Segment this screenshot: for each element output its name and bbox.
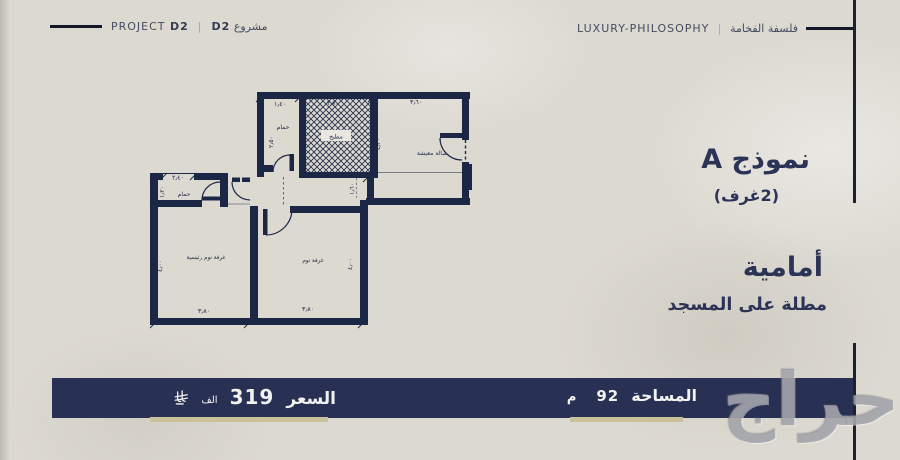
haraj-watermark: حراج — [722, 360, 900, 441]
dim-bath2-width: ٢٫٤٠ — [172, 175, 184, 182]
facing-title: أمامية — [743, 252, 823, 283]
dim-corridor-height: ١٫٦٠ — [349, 183, 356, 195]
dim-master-height: ٤٫٠٠ — [157, 260, 164, 272]
area-label: المساحة — [631, 386, 697, 405]
price-underline — [150, 417, 328, 422]
left-edge-shadow — [0, 0, 10, 460]
area-unit: م — [567, 390, 577, 405]
area-underline — [570, 417, 683, 422]
model-name: نموذج A — [701, 144, 810, 175]
dim-bath2-height: ١٫٢٠ — [159, 186, 166, 198]
dim-living-width: ٣٫٦٠ — [410, 99, 422, 106]
price-unit: الف — [201, 395, 217, 406]
luxury-label-en: LUXURY-PHILOSOPHY — [577, 22, 709, 35]
header-brand-right: LUXURY-PHILOSOPHY | فلسفة الفخامة — [577, 22, 854, 35]
room-label-master-bedroom: غرفة نوم رئيسية — [187, 255, 226, 261]
room-label-kitchen: مطبخ — [329, 134, 343, 141]
dim-kitchen-width: ٢٫٧٠ — [327, 100, 339, 107]
room-label-living: صالة معيشة — [417, 150, 447, 157]
room-label-bath1: حمام — [277, 124, 290, 131]
dim-bedroom-width: ٣٫٨٠ — [302, 306, 314, 313]
price-label: السعر — [286, 389, 336, 409]
luxury-label-ar: فلسفة الفخامة — [730, 22, 798, 35]
project-label-ar: مشروع D2 — [212, 20, 268, 33]
dim-bath1-height: ٢٫٥٠ — [268, 136, 275, 148]
rooms-count: (2غرف) — [714, 186, 779, 205]
header-brand-left: PROJECT D2 | مشروع D2 — [50, 20, 268, 33]
floor-plan: حمام مطبخ صالة معيشة حمام غرفة نوم رئيسي… — [140, 80, 480, 330]
header-right-rule — [806, 27, 854, 30]
view-subtitle: مطلة على المسجد — [668, 295, 827, 315]
area-group: المساحة 92 م — [572, 386, 697, 405]
dim-bedroom-height: ٤٫٠٠ — [347, 258, 354, 270]
project-label-en: PROJECT D2 — [111, 20, 189, 33]
area-value: 92 — [596, 387, 619, 405]
room-label-bath2: حمام — [178, 191, 191, 198]
header-right-separator: | — [717, 22, 722, 35]
dim-living-height: ٤٫٣٠ — [375, 138, 382, 150]
room-label-bedroom: غرفة نوم — [302, 258, 323, 264]
price-value: 319 — [230, 385, 275, 409]
dim-master-width: ٣٫٨٠ — [198, 308, 210, 315]
price-group: السعر 319 الف — [164, 385, 336, 409]
saudi-riyal-icon — [174, 390, 189, 409]
dim-bath1-width: ١٫٤٠ — [274, 101, 286, 108]
header-left-rule — [50, 25, 102, 28]
poster-canvas: PROJECT D2 | مشروع D2 LUXURY-PHILOSOPHY … — [0, 0, 900, 460]
header-left-separator: | — [198, 20, 203, 33]
